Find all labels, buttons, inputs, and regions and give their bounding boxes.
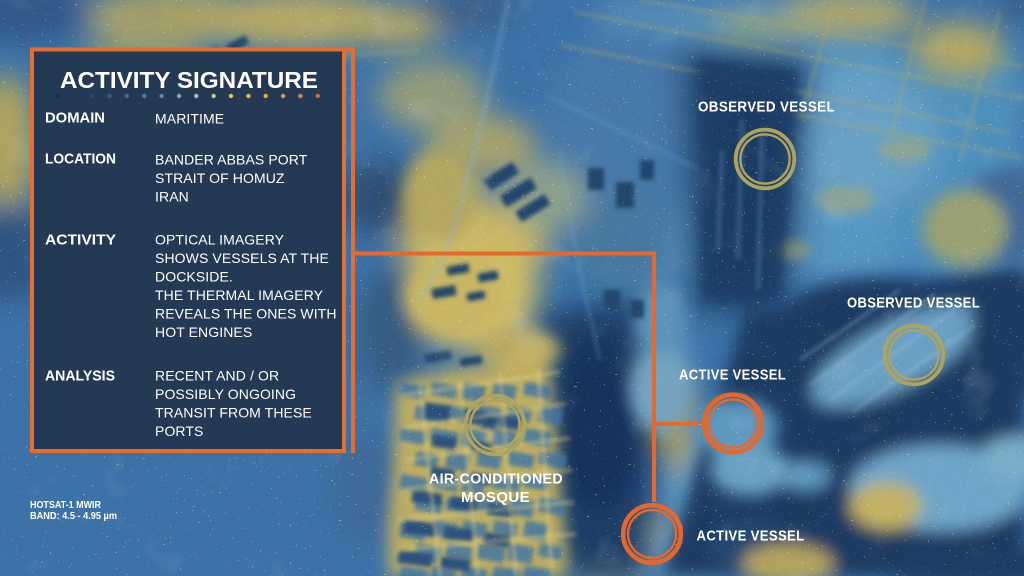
svg-text:THE THERMAL IMAGERY: THE THERMAL IMAGERY xyxy=(155,287,324,303)
svg-text:DOCKSIDE.: DOCKSIDE. xyxy=(155,269,233,285)
svg-text:MARITIME: MARITIME xyxy=(155,111,224,127)
svg-text:PORTS: PORTS xyxy=(155,423,203,439)
svg-text:ACTIVITY SIGNATURE: ACTIVITY SIGNATURE xyxy=(60,67,318,93)
svg-text:STRAIT OF HOMUZ: STRAIT OF HOMUZ xyxy=(155,170,285,186)
svg-text:ANALYSIS: ANALYSIS xyxy=(45,369,115,385)
svg-text:DOMAIN: DOMAIN xyxy=(45,111,105,127)
svg-text:LOCATION: LOCATION xyxy=(45,152,116,168)
svg-text:POSSIBLY ONGOING: POSSIBLY ONGOING xyxy=(155,386,296,402)
svg-text:AIR-CONDITIONED: AIR-CONDITIONED xyxy=(429,471,563,488)
svg-text:HOTSAT-1 MWIR: HOTSAT-1 MWIR xyxy=(30,500,101,511)
svg-text:IRAN: IRAN xyxy=(155,189,189,205)
svg-text:BANDER ABBAS PORT: BANDER ABBAS PORT xyxy=(155,152,308,168)
svg-text:ACTIVE VESSEL: ACTIVE VESSEL xyxy=(697,528,805,545)
svg-text:ACTIVITY: ACTIVITY xyxy=(45,233,116,249)
svg-text:OBSERVED VESSEL: OBSERVED VESSEL xyxy=(698,99,835,116)
svg-text:REVEALS THE ONES WITH: REVEALS THE ONES WITH xyxy=(155,306,337,322)
svg-text:HOT ENGINES: HOT ENGINES xyxy=(155,324,252,340)
svg-text:RECENT AND / OR: RECENT AND / OR xyxy=(155,368,279,384)
svg-text:OBSERVED VESSEL: OBSERVED VESSEL xyxy=(847,295,980,312)
svg-text:TRANSIT FROM THESE: TRANSIT FROM THESE xyxy=(155,405,312,421)
svg-text:OPTICAL IMAGERY: OPTICAL IMAGERY xyxy=(155,232,285,248)
svg-text:BAND: 4.5 - 4.95 µm: BAND: 4.5 - 4.95 µm xyxy=(30,511,117,522)
svg-text:MOSQUE: MOSQUE xyxy=(461,489,530,506)
svg-text:SHOWS VESSELS AT THE: SHOWS VESSELS AT THE xyxy=(155,250,329,266)
svg-text:ACTIVE VESSEL: ACTIVE VESSEL xyxy=(679,367,786,384)
